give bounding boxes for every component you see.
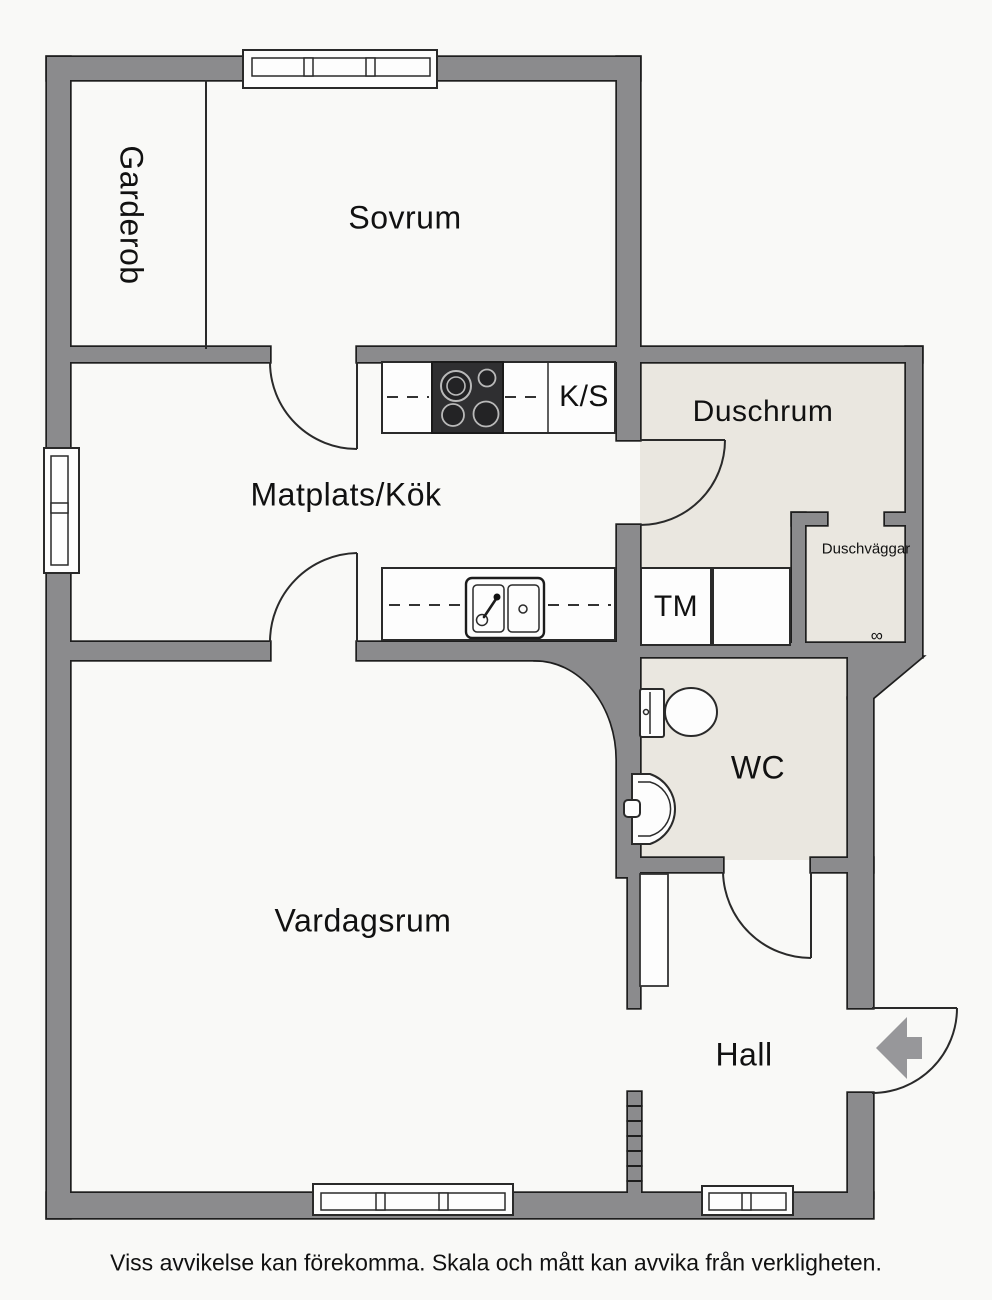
room-label-hall: Hall	[715, 1037, 772, 1074]
window-left	[44, 448, 79, 573]
appliance-box	[713, 568, 790, 645]
kitchen-sink-icon	[466, 578, 544, 638]
door-matplats-vardagsrum	[270, 553, 357, 642]
window-bottom-right	[702, 1186, 793, 1215]
floor-drain-icon: ∞	[871, 626, 884, 646]
kitchen-counter-bottom	[382, 568, 615, 640]
label-washing-machine: TM	[654, 590, 698, 624]
door-wc	[723, 872, 811, 958]
stove-icon	[432, 362, 503, 433]
room-label-vardagsrum: Vardagsrum	[275, 903, 452, 940]
label-duschvaggar: Duschväggar	[822, 541, 910, 558]
floor-plan: Garderob Sovrum Matplats/Kök K/S Duschru…	[0, 0, 992, 1300]
room-label-garderob: Garderob	[113, 145, 150, 284]
label-fridge-freezer: K/S	[559, 380, 609, 414]
entrance-arrow-icon	[876, 1017, 922, 1079]
room-label-matplats-kok: Matplats/Kök	[251, 477, 442, 514]
window-bottom-left	[313, 1184, 513, 1215]
room-label-duschrum: Duschrum	[693, 395, 834, 429]
window-top	[243, 50, 437, 88]
hall-closet	[640, 874, 668, 986]
toilet-icon	[640, 688, 717, 737]
door-garderob-matplats	[270, 362, 357, 449]
disclaimer-text: Viss avvikelse kan förekomma. Skala och …	[110, 1250, 882, 1277]
room-label-wc: WC	[731, 750, 785, 787]
room-label-sovrum: Sovrum	[348, 200, 461, 237]
